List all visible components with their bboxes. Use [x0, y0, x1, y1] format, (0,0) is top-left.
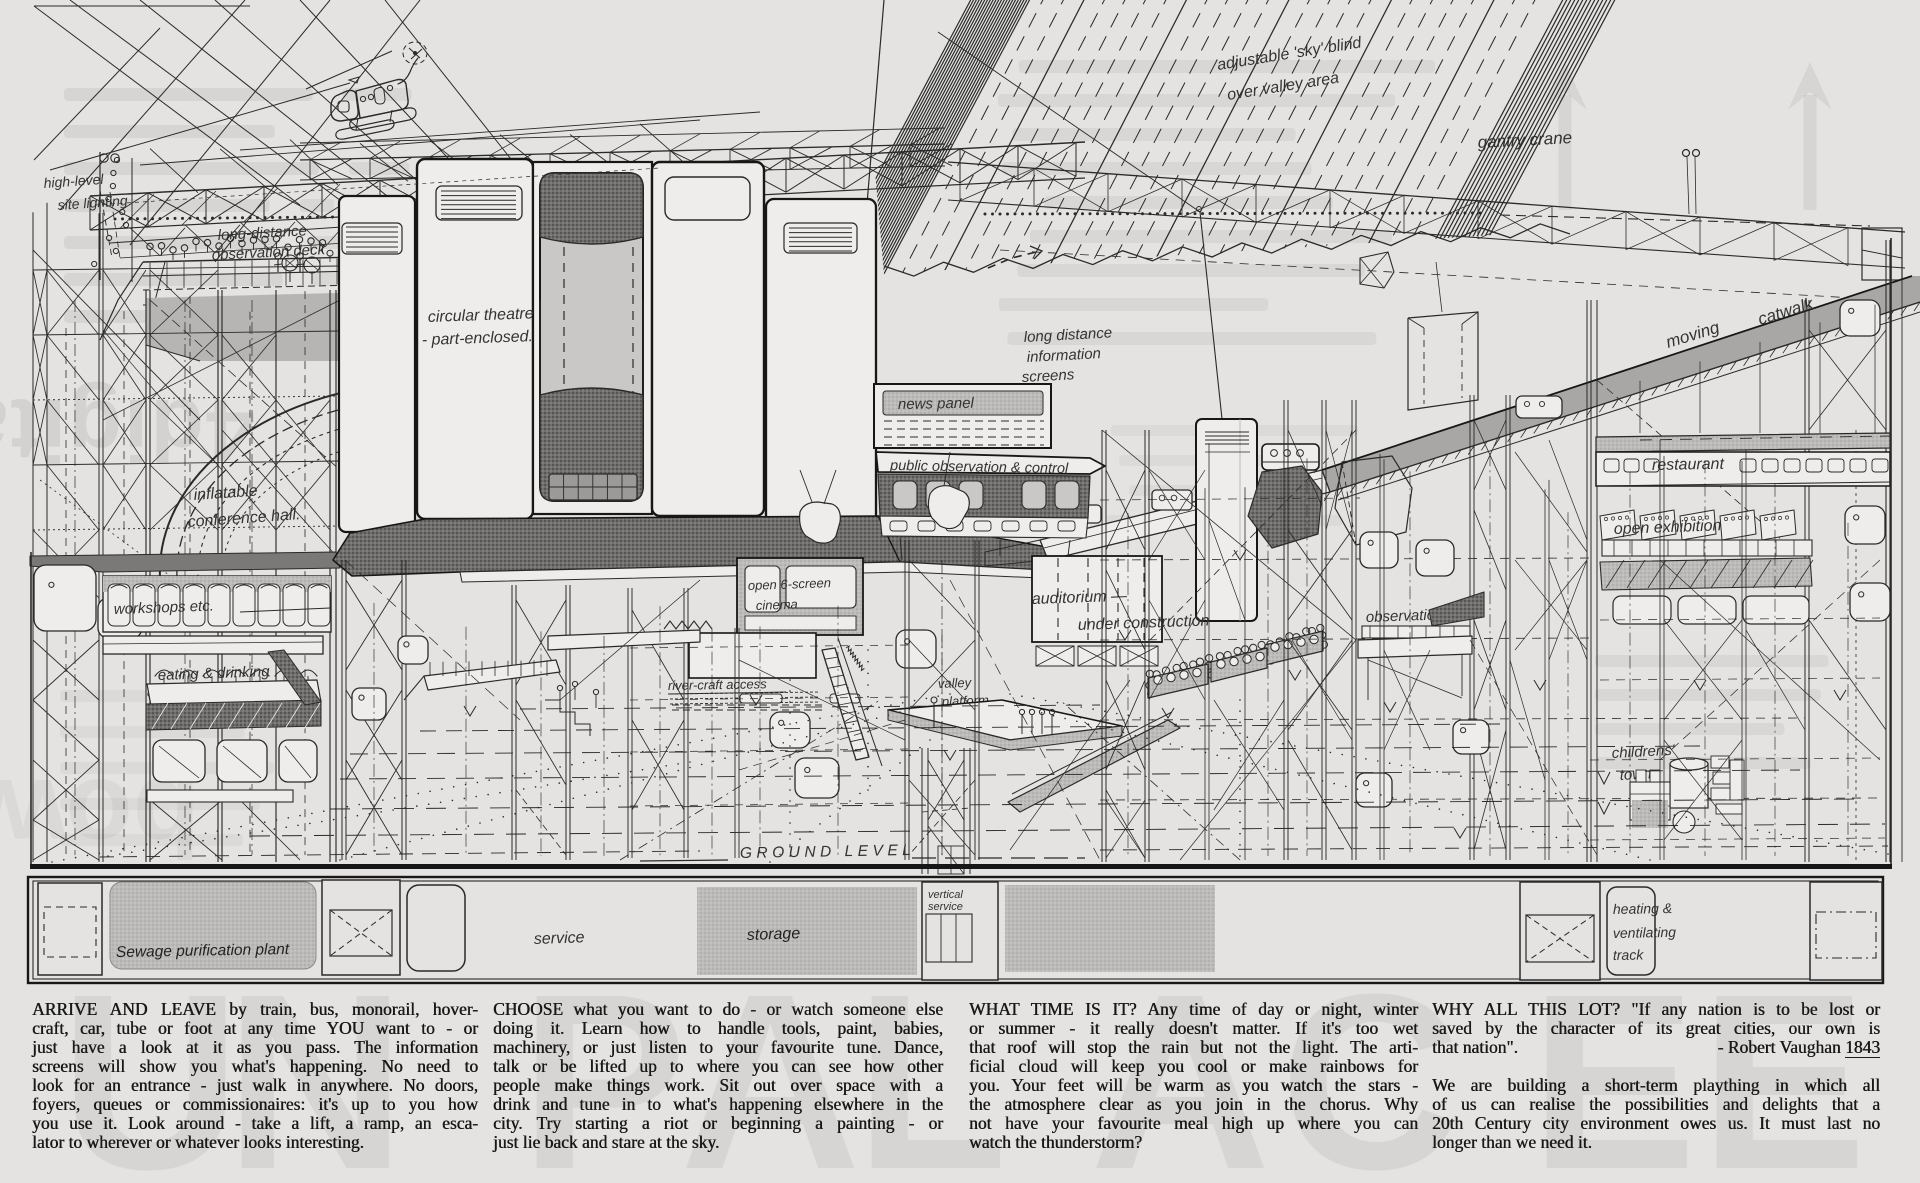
svg-text:Sewage purification plant: Sewage purification plant: [116, 941, 290, 961]
svg-text:ventilating: ventilating: [1613, 924, 1677, 941]
svg-text:vertical: vertical: [928, 889, 963, 901]
svg-text:news panel: news panel: [898, 395, 975, 413]
svg-text:river-craft access: river-craft access: [668, 676, 767, 693]
svg-text:childrens': childrens': [1611, 742, 1676, 762]
svg-text:GROUND LEVEL: GROUND LEVEL: [740, 842, 916, 862]
svg-text:service: service: [928, 901, 963, 913]
svg-text:workshops etc.: workshops etc.: [114, 598, 215, 618]
svg-text:heating &: heating &: [1613, 900, 1672, 917]
svg-text:service: service: [534, 929, 585, 948]
svg-text:restaurant: restaurant: [1652, 456, 1725, 474]
svg-text:open 6-screen: open 6-screen: [748, 575, 832, 593]
svg-text:auditorium —: auditorium —: [1032, 588, 1129, 608]
svg-text:track: track: [1613, 946, 1645, 963]
svg-text:screens: screens: [1021, 366, 1075, 386]
svg-text:cinema: cinema: [756, 597, 798, 613]
svg-text:storage: storage: [747, 925, 801, 944]
